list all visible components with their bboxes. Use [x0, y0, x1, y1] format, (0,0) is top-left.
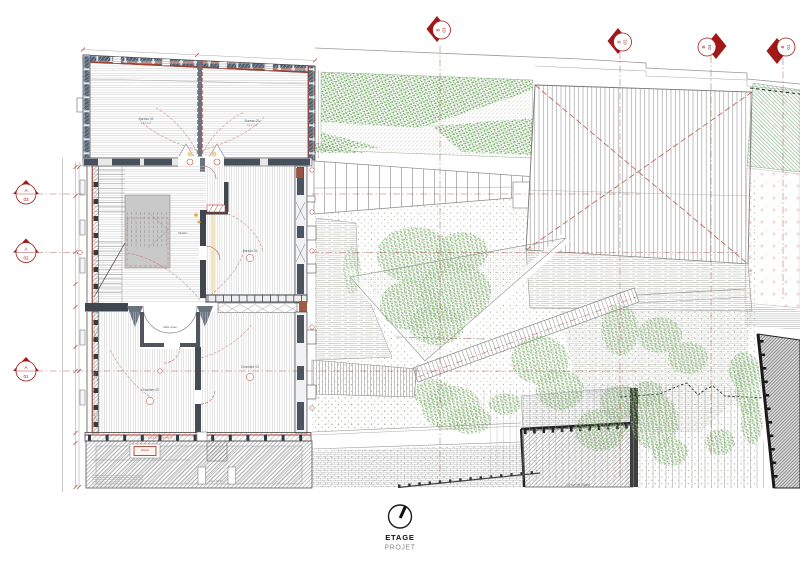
svg-text:gaine 60x60: gaine 60x60 — [209, 480, 223, 483]
svg-text:04: 04 — [707, 44, 712, 49]
svg-text:Bureau 01: Bureau 01 — [243, 249, 258, 253]
svg-text:PROJET: PROJET — [384, 545, 415, 552]
svg-text:01: 01 — [23, 374, 29, 379]
svg-text:03: 03 — [442, 27, 447, 32]
svg-text:14,5 m2: 14,5 m2 — [141, 121, 152, 125]
svg-text:Chambre 03: Chambre 03 — [241, 365, 259, 369]
svg-text:03: 03 — [23, 197, 29, 202]
svg-text:02: 02 — [623, 39, 628, 44]
svg-text:ETAGE: ETAGE — [385, 533, 415, 542]
svg-text:01: 01 — [786, 44, 791, 49]
svg-text:B: B — [701, 45, 706, 48]
svg-text:VOLETS ROULANTS: VOLETS ROULANTS — [147, 436, 172, 440]
svg-text:B: B — [617, 40, 622, 43]
svg-text:Distrib.: Distrib. — [178, 231, 188, 235]
svg-text:Edicule: Edicule — [141, 449, 150, 452]
svg-text:Salle d'eau: Salle d'eau — [163, 325, 177, 329]
svg-text:B: B — [436, 28, 441, 31]
svg-text:02: 02 — [23, 256, 29, 261]
svg-text:Chambre 02: Chambre 02 — [141, 388, 159, 392]
svg-text:B: B — [780, 45, 785, 48]
svg-text:14,2 m2: 14,2 m2 — [247, 123, 258, 127]
